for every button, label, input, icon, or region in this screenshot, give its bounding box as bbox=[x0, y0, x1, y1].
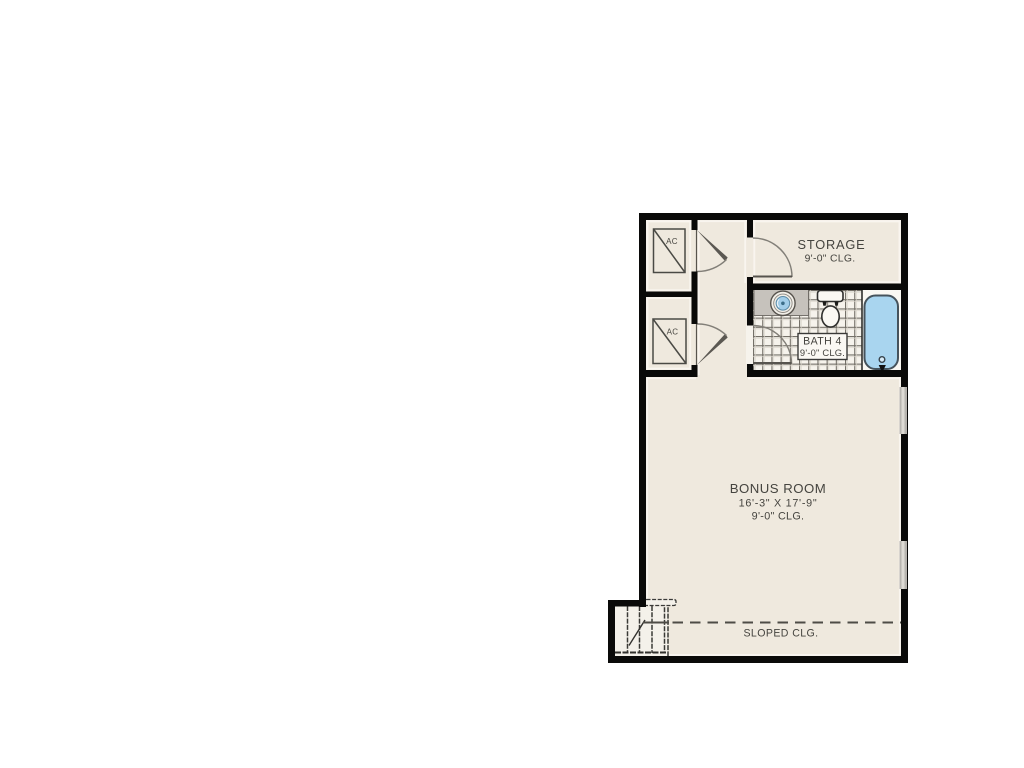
svg-text:AC: AC bbox=[666, 237, 678, 246]
svg-text:BONUS ROOM: BONUS ROOM bbox=[730, 481, 827, 496]
svg-text:9'-0" CLG.: 9'-0" CLG. bbox=[752, 511, 805, 523]
svg-text:AC: AC bbox=[667, 328, 679, 337]
svg-text:9'-0" CLG.: 9'-0" CLG. bbox=[800, 347, 845, 358]
svg-text:BATH 4: BATH 4 bbox=[803, 336, 842, 348]
svg-text:9'-0" CLG.: 9'-0" CLG. bbox=[805, 254, 856, 265]
svg-text:STORAGE: STORAGE bbox=[798, 237, 866, 252]
svg-text:16'-3" X 17'-9": 16'-3" X 17'-9" bbox=[739, 498, 818, 510]
svg-text:SLOPED CLG.: SLOPED CLG. bbox=[743, 628, 818, 640]
